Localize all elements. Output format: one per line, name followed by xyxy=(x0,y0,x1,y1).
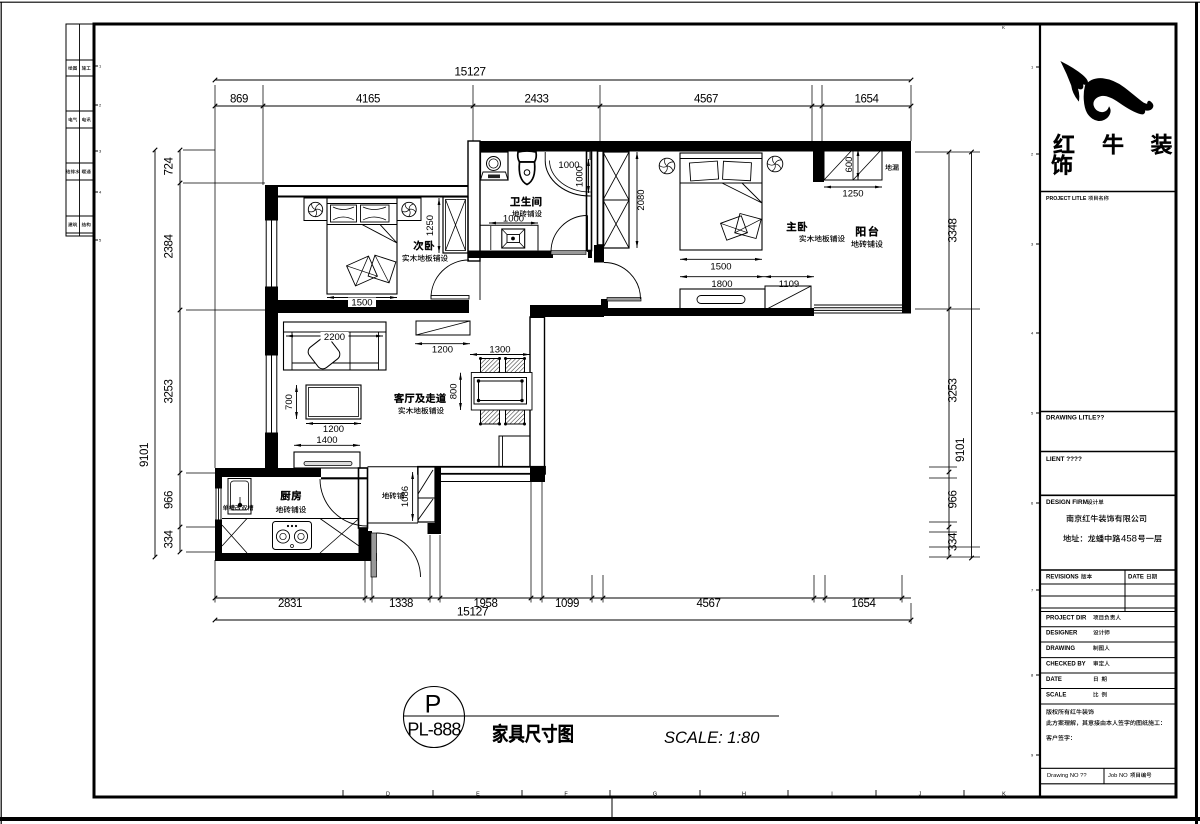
svg-text:2080: 2080 xyxy=(636,189,647,210)
svg-text:1000: 1000 xyxy=(503,214,524,225)
svg-text:4165: 4165 xyxy=(356,94,380,106)
svg-text:1250: 1250 xyxy=(842,189,863,200)
svg-text:K: K xyxy=(1002,792,1006,798)
svg-text:1250: 1250 xyxy=(425,215,436,236)
svg-text:DATE: DATE xyxy=(1046,677,1062,683)
svg-text:1200: 1200 xyxy=(323,424,344,435)
svg-text:LIENT ????: LIENT ???? xyxy=(1046,456,1082,463)
svg-text:K: K xyxy=(1002,25,1005,30)
svg-text:1300: 1300 xyxy=(489,345,510,356)
svg-text:458: 458 xyxy=(1121,534,1137,545)
svg-text:1800: 1800 xyxy=(711,279,732,290)
svg-text:D: D xyxy=(386,792,390,798)
svg-text:2831: 2831 xyxy=(278,598,302,610)
svg-text:P: P xyxy=(425,691,442,719)
svg-text:PROJECT DIR: PROJECT DIR xyxy=(1046,616,1087,622)
svg-text:CHECKED BY: CHECKED BY xyxy=(1046,662,1086,668)
svg-text:1000: 1000 xyxy=(575,166,586,187)
svg-text:SCALE: SCALE xyxy=(1046,693,1066,699)
svg-text:1654: 1654 xyxy=(855,94,880,106)
svg-text:2384: 2384 xyxy=(164,234,176,259)
svg-text:15127: 15127 xyxy=(457,605,489,619)
svg-text:1200: 1200 xyxy=(432,345,453,356)
svg-text:DATE: DATE xyxy=(1128,575,1144,581)
svg-text:DESIGNER: DESIGNER xyxy=(1046,631,1078,637)
svg-text:3253: 3253 xyxy=(948,379,960,403)
svg-text:G: G xyxy=(653,792,657,798)
svg-text:334: 334 xyxy=(948,532,960,551)
svg-text:Drawing NO ??: Drawing NO ?? xyxy=(1047,773,1087,779)
svg-text:SCALE: 1:80: SCALE: 1:80 xyxy=(664,729,760,747)
svg-text:4567: 4567 xyxy=(697,598,721,610)
svg-text:J: J xyxy=(919,792,922,798)
svg-text:H: H xyxy=(742,792,746,798)
svg-text:Job NO: Job NO xyxy=(1108,773,1128,779)
svg-text:4567: 4567 xyxy=(694,94,718,106)
svg-text:3253: 3253 xyxy=(164,380,176,404)
svg-text:1099: 1099 xyxy=(555,598,579,610)
svg-text:966: 966 xyxy=(164,491,176,509)
svg-text:DESIGN FIRM: DESIGN FIRM xyxy=(1046,499,1088,506)
svg-text:1400: 1400 xyxy=(316,435,337,446)
svg-text:1086: 1086 xyxy=(400,486,411,507)
svg-text:9101: 9101 xyxy=(955,438,967,462)
svg-text:724: 724 xyxy=(164,157,176,176)
svg-text:1500: 1500 xyxy=(351,298,372,309)
svg-text:9101: 9101 xyxy=(139,443,151,467)
svg-text:869: 869 xyxy=(230,94,248,106)
svg-text:1338: 1338 xyxy=(389,598,413,610)
svg-text:E: E xyxy=(476,792,480,798)
svg-text:2433: 2433 xyxy=(525,94,549,106)
svg-text:PL-888: PL-888 xyxy=(407,720,461,740)
svg-text:3348: 3348 xyxy=(948,219,960,243)
svg-text:1500: 1500 xyxy=(710,262,731,273)
svg-text:PROJECT LITLE: PROJECT LITLE xyxy=(1046,196,1087,202)
svg-text:966: 966 xyxy=(948,491,960,509)
svg-text:2200: 2200 xyxy=(324,332,345,343)
svg-text:600: 600 xyxy=(844,157,855,173)
svg-text:800: 800 xyxy=(449,383,460,399)
svg-text:1654: 1654 xyxy=(852,598,877,610)
svg-text:15127: 15127 xyxy=(454,65,486,79)
svg-text:DRAWING LITLE??: DRAWING LITLE?? xyxy=(1046,415,1104,422)
svg-text:REVISIONS: REVISIONS xyxy=(1046,575,1079,581)
svg-text:1109: 1109 xyxy=(779,279,799,290)
svg-text:334: 334 xyxy=(164,530,176,549)
svg-text:700: 700 xyxy=(284,394,295,410)
svg-text:DRAWING: DRAWING xyxy=(1046,646,1075,652)
